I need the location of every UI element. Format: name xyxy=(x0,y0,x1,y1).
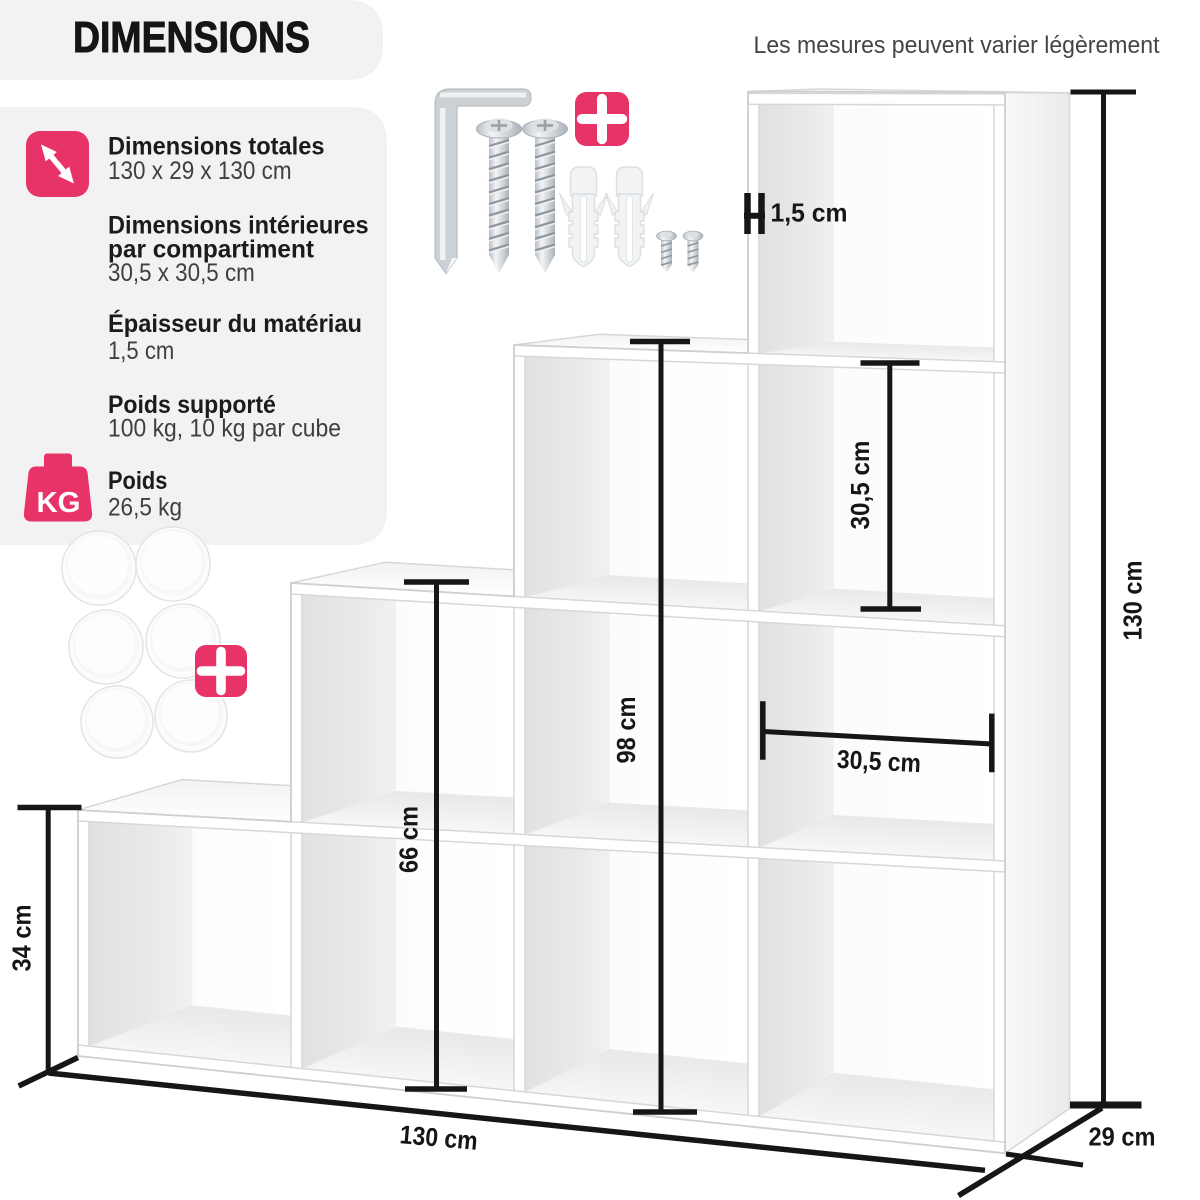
svg-text:130 cm: 130 cm xyxy=(1118,561,1148,641)
svg-text:Épaisseur du matériau: Épaisseur du matériau xyxy=(108,309,362,338)
svg-text:26,5 kg: 26,5 kg xyxy=(108,494,182,522)
svg-text:1,5 cm: 1,5 cm xyxy=(771,198,848,228)
svg-text:98 cm: 98 cm xyxy=(611,697,641,764)
svg-text:Poids: Poids xyxy=(108,467,167,495)
svg-text:1,5 cm: 1,5 cm xyxy=(108,337,174,365)
svg-text:Les mesures peuvent varier lég: Les mesures peuvent varier légèrement xyxy=(754,32,1160,59)
svg-text:30,5 cm: 30,5 cm xyxy=(845,441,875,530)
svg-text:34 cm: 34 cm xyxy=(7,905,37,972)
svg-text:130 x 29 x 130 cm: 130 x 29 x 130 cm xyxy=(108,157,292,185)
svg-text:DIMENSIONS: DIMENSIONS xyxy=(73,13,310,62)
svg-text:KG: KG xyxy=(37,487,81,519)
svg-text:29 cm: 29 cm xyxy=(1089,1122,1156,1152)
svg-text:100 kg, 10 kg par cube: 100 kg, 10 kg par cube xyxy=(108,415,341,443)
svg-text:30,5 cm: 30,5 cm xyxy=(836,744,921,778)
svg-text:66 cm: 66 cm xyxy=(394,806,424,873)
svg-text:30,5 x 30,5 cm: 30,5 x 30,5 cm xyxy=(108,259,255,287)
